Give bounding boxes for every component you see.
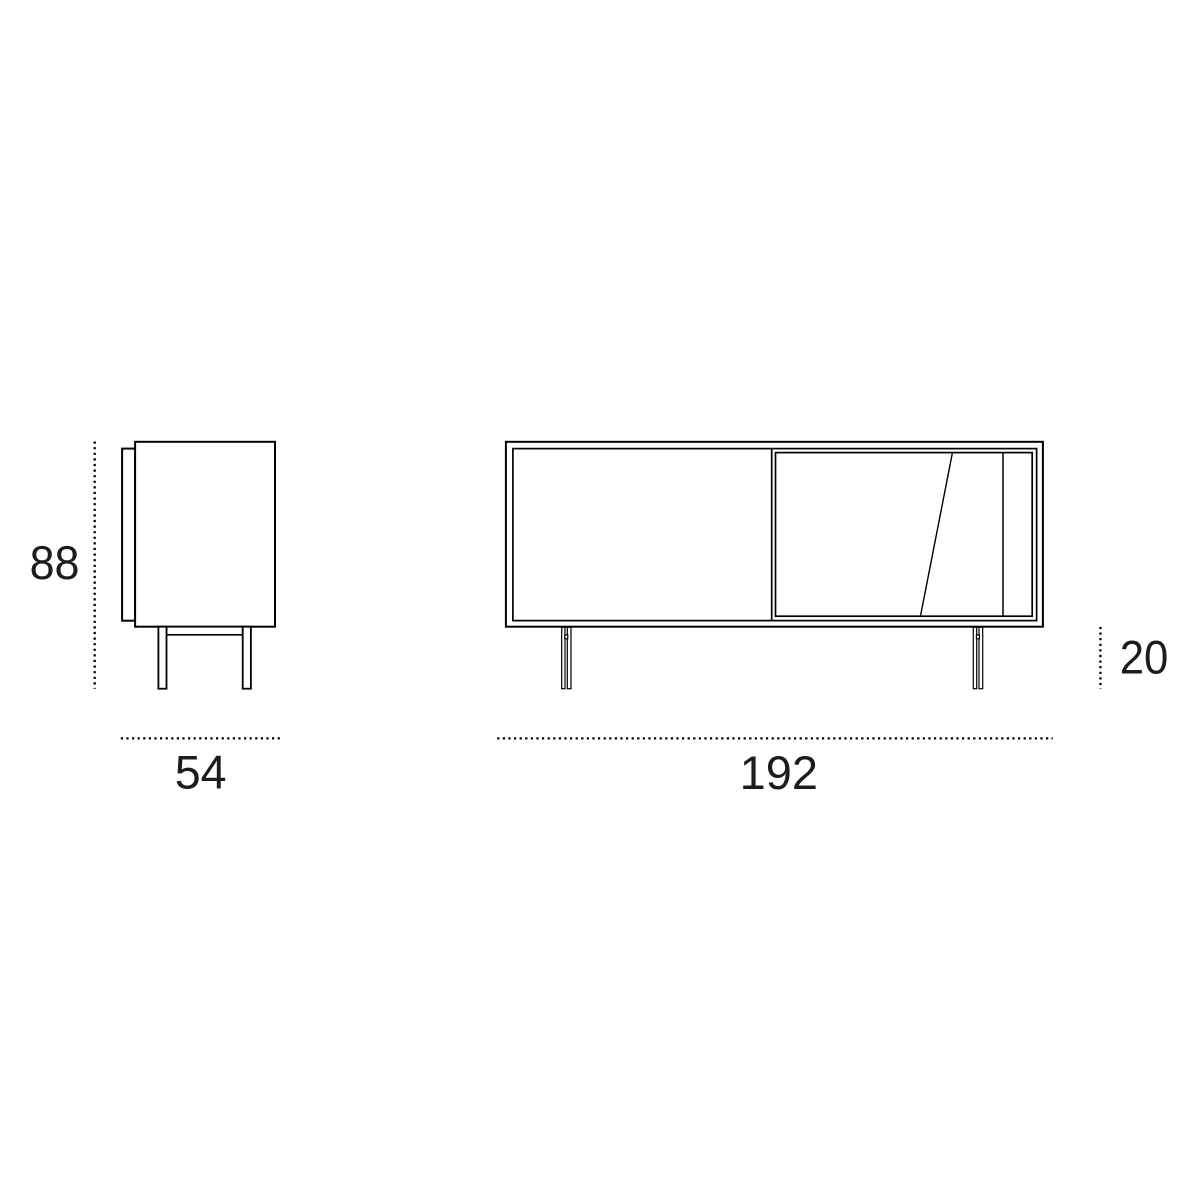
svg-text:88: 88 bbox=[30, 536, 80, 589]
svg-text:20: 20 bbox=[1120, 630, 1169, 683]
svg-text:192: 192 bbox=[740, 746, 818, 799]
svg-text:54: 54 bbox=[175, 746, 227, 799]
